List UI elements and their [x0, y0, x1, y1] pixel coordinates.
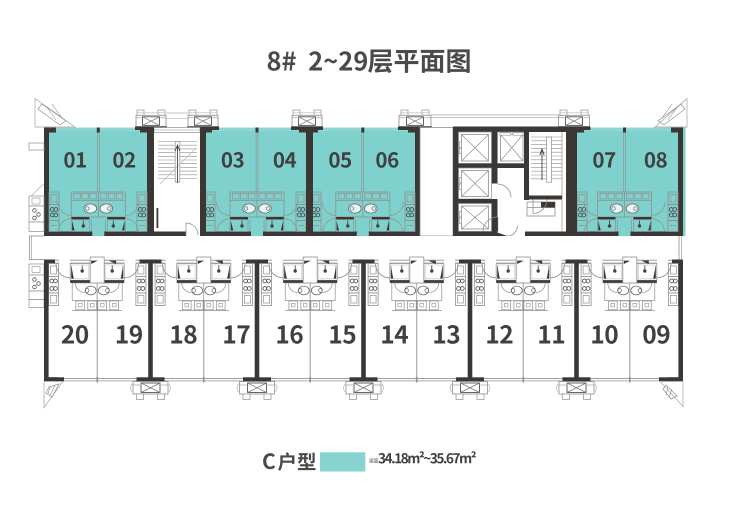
- svg-text:建面: 建面: [369, 458, 379, 465]
